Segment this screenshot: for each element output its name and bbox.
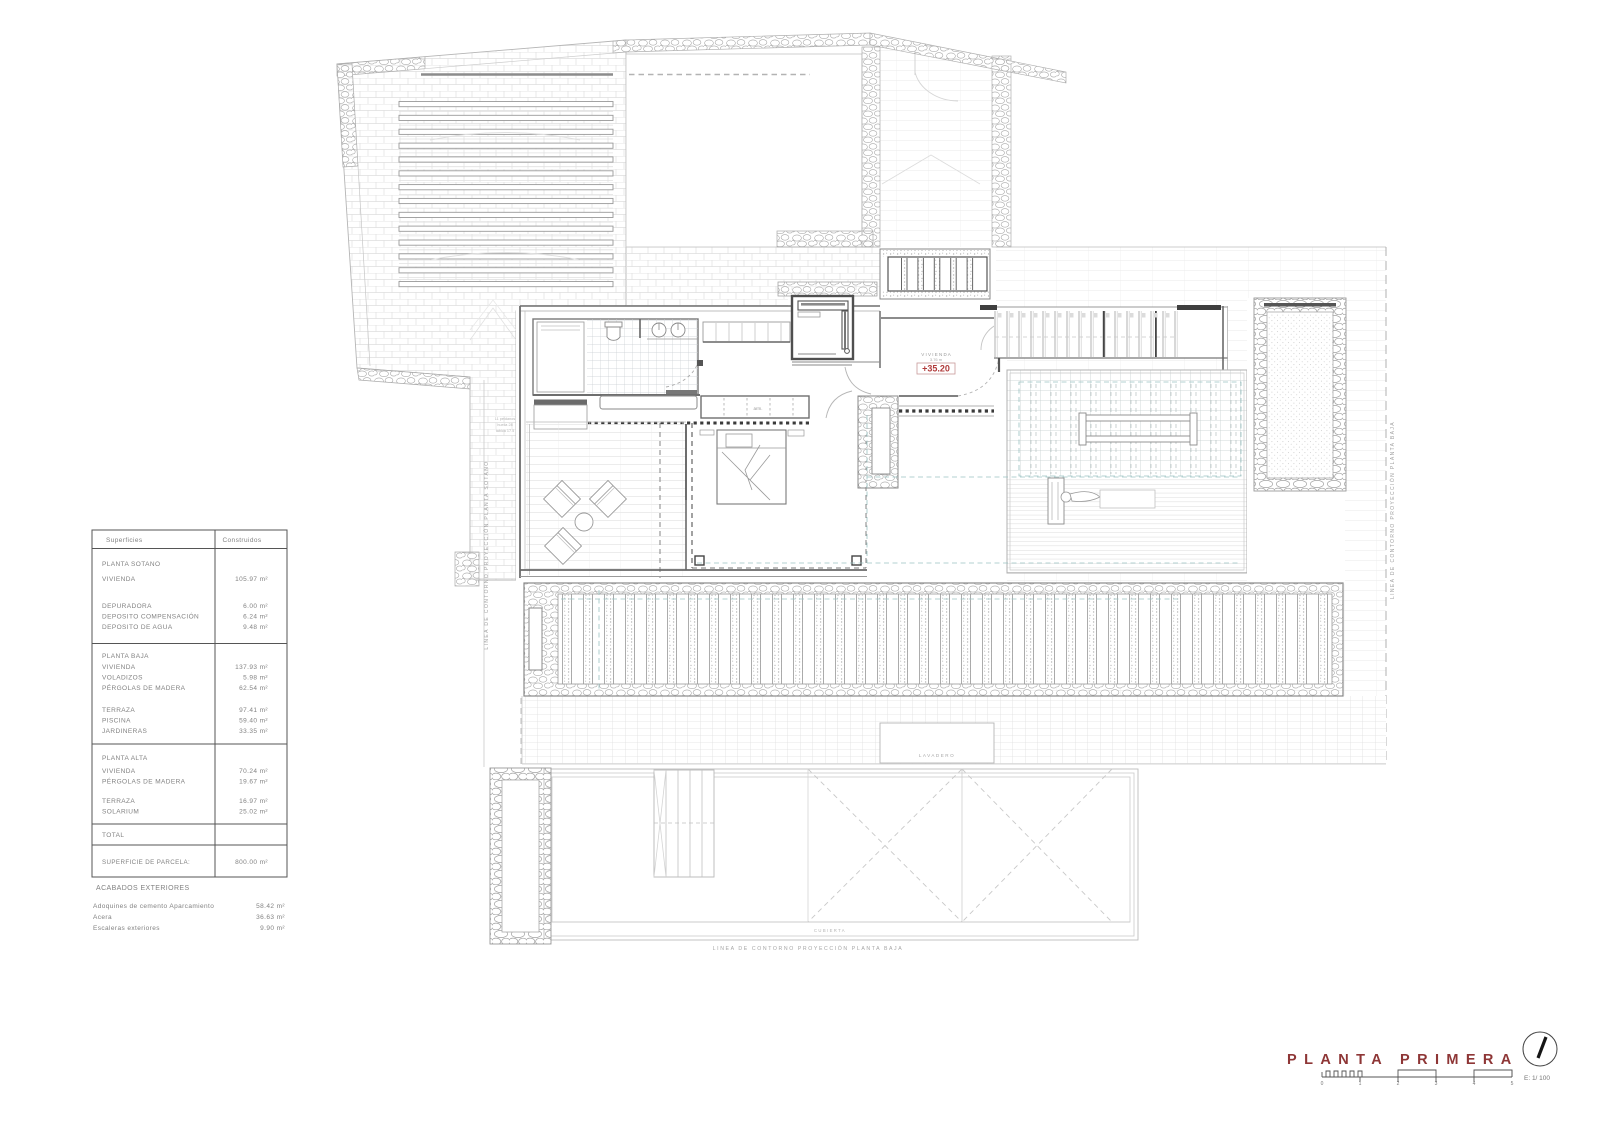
svg-text:5.98 m²: 5.98 m² [243,675,268,682]
svg-text:E: 1/ 100: E: 1/ 100 [1524,1075,1550,1082]
svg-text:6.24 m²: 6.24 m² [243,614,268,621]
svg-text:Superficies: Superficies [106,537,143,544]
svg-text:LINEA DE CONTORNO PROYECCIÓN P: LINEA DE CONTORNO PROYECCIÓN PLANTA BAJA [1389,421,1396,599]
svg-text:4: 4 [1473,1081,1476,1087]
svg-text:TERRAZA: TERRAZA [102,798,135,805]
svg-text:58.42 m²: 58.42 m² [256,903,285,910]
svg-text:LINEA DE CONTORNO PROYECCIÓN P: LINEA DE CONTORNO PROYECCIÓN PLANTA BAJA [713,945,904,952]
svg-text:2: 2 [1397,1081,1400,1087]
svg-text:SOLARIUM: SOLARIUM [102,809,139,816]
svg-text:33.35 m²: 33.35 m² [239,728,268,735]
svg-text:137.93 m²: 137.93 m² [235,664,268,671]
svg-text:5: 5 [1511,1081,1514,1087]
svg-text:3: 3 [1435,1081,1438,1087]
svg-text:PÉRGOLAS DE MADERA: PÉRGOLAS DE MADERA [102,683,186,692]
svg-text:0: 0 [1321,1081,1324,1087]
svg-text:DEPOSITO DE AGUA: DEPOSITO DE AGUA [102,624,173,631]
svg-text:62.54 m²: 62.54 m² [239,685,268,692]
svg-text:CUBIERTA: CUBIERTA [814,928,846,933]
svg-text:PLANTA PRIMERA: PLANTA PRIMERA [1287,1052,1519,1068]
svg-text:VOLADIZOS: VOLADIZOS [102,675,143,682]
svg-text:25.02 m²: 25.02 m² [239,809,268,816]
svg-text:ACABADOS EXTERIORES: ACABADOS EXTERIORES [96,885,190,892]
svg-text:LINEA DE CONTORNO PROYECCIÓN P: LINEA DE CONTORNO PROYECCIÓN PLANTA SOTA… [483,460,490,649]
svg-text:LAVADERO: LAVADERO [919,753,955,758]
svg-text:PLANTA ALTA: PLANTA ALTA [102,755,148,762]
svg-text:1: 1 [1359,1081,1362,1087]
svg-text:6.00 m²: 6.00 m² [243,603,268,610]
svg-text:Construidos: Construidos [222,537,261,544]
svg-text:PISCINA: PISCINA [102,718,131,725]
svg-text:3.76 m: 3.76 m [930,357,943,362]
svg-text:36.63 m²: 36.63 m² [256,914,285,921]
svg-text:Escaleras exteriores: Escaleras exteriores [93,925,160,932]
svg-text:800.00 m²: 800.00 m² [235,859,268,866]
svg-text:tabica 17.5: tabica 17.5 [496,429,515,433]
svg-text:TOTAL: TOTAL [102,832,124,839]
svg-text:VIVIENDA: VIVIENDA [102,576,136,583]
svg-text:Adoquines de cemento Aparcamie: Adoquines de cemento Aparcamiento [93,903,214,910]
svg-text:TERRAZA: TERRAZA [102,707,135,714]
svg-text:9.90 m²: 9.90 m² [260,925,285,932]
svg-text:11 peldanos: 11 peldanos [495,417,516,421]
svg-text:VIVIENDA: VIVIENDA [102,664,136,671]
svg-text:+35.20: +35.20 [922,364,950,374]
svg-text:SUPERFICIE DE PARCELA:: SUPERFICIE DE PARCELA: [102,859,190,866]
svg-text:PÉRGOLAS DE MADERA: PÉRGOLAS DE MADERA [102,777,186,786]
svg-text:arm.: arm. [754,406,763,411]
svg-text:9.48 m²: 9.48 m² [243,624,268,631]
svg-text:VIVIENDA: VIVIENDA [102,768,136,775]
svg-text:16.97 m²: 16.97 m² [239,798,268,805]
svg-text:PLANTA SOTANO: PLANTA SOTANO [102,561,160,568]
svg-text:huella 28: huella 28 [497,423,512,427]
svg-text:Acera: Acera [93,914,112,921]
svg-text:DEPURADORA: DEPURADORA [102,603,152,610]
svg-text:DEPOSITO COMPENSACIÓN: DEPOSITO COMPENSACIÓN [102,612,199,621]
svg-text:70.24 m²: 70.24 m² [239,768,268,775]
svg-text:105.97 m²: 105.97 m² [235,576,268,583]
svg-text:59.40 m²: 59.40 m² [239,718,268,725]
svg-text:JARDINERAS: JARDINERAS [102,728,147,735]
svg-text:97.41 m²: 97.41 m² [239,707,268,714]
svg-text:19.67 m²: 19.67 m² [239,779,268,786]
svg-text:PLANTA BAJA: PLANTA BAJA [102,653,149,660]
